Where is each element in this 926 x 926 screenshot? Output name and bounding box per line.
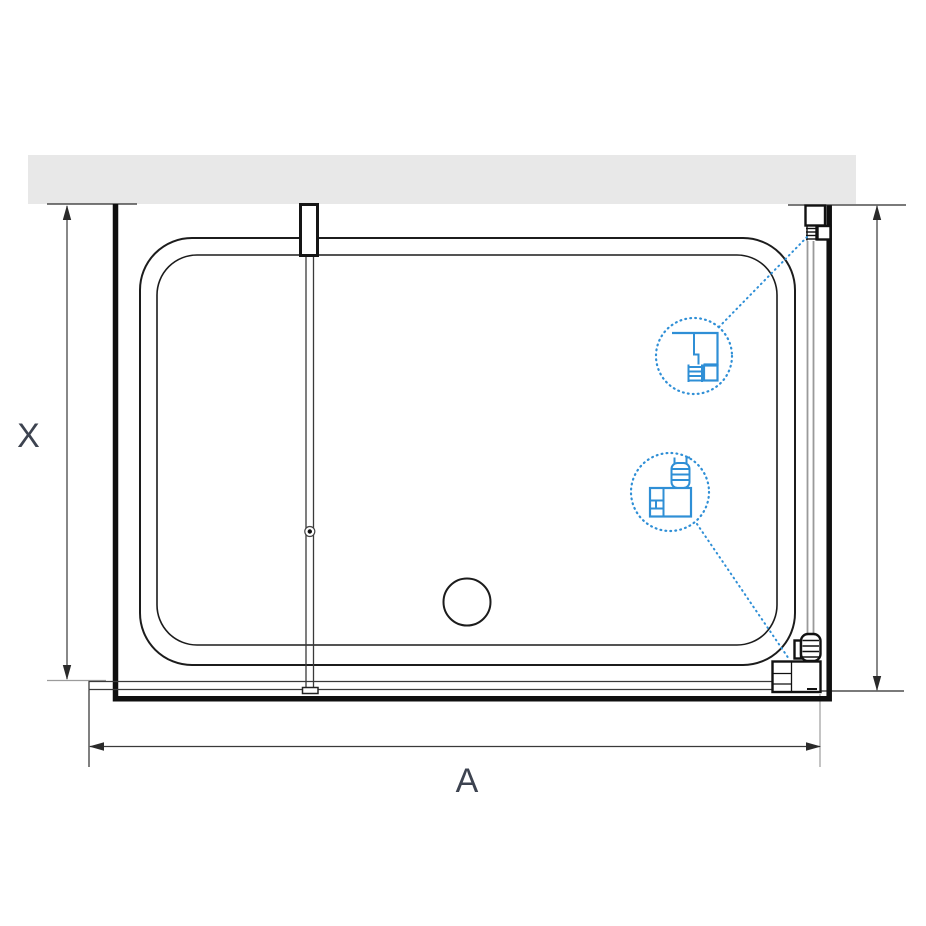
gasket-coil-top-right — [806, 226, 817, 241]
floor-profile-bottom-right — [773, 634, 821, 692]
detail-callout-wall-profile — [656, 318, 732, 394]
wall-bracket-middle-panel — [301, 205, 318, 256]
shower-tray-outer — [140, 238, 795, 665]
detail-circle-lower — [631, 453, 709, 531]
wall-top — [28, 155, 856, 204]
detail-callout-floor-profile — [631, 453, 709, 531]
arrow-up-icon — [63, 205, 71, 220]
technical-drawing-page: X A — [0, 0, 926, 926]
panel-connector-dot-center — [308, 529, 312, 533]
dim-label-a: A — [456, 762, 479, 800]
dim-label-x: X — [17, 417, 40, 455]
arrow-down-icon — [873, 676, 881, 691]
dimension-width-a: A — [89, 742, 821, 800]
arrow-down-icon — [63, 665, 71, 680]
arrow-left-icon — [89, 742, 104, 750]
detail-circle-upper — [656, 318, 732, 394]
drain-icon — [444, 579, 491, 626]
shower-enclosure-plan-drawing: X A — [0, 0, 926, 926]
dimension-right-vertical — [873, 205, 881, 691]
panel-floor-foot — [303, 688, 319, 694]
shower-tray-inner — [157, 255, 777, 645]
leader-line-lower-detail — [697, 524, 789, 659]
arrow-right-icon — [806, 742, 821, 750]
arrow-up-icon — [873, 205, 881, 220]
dimension-depth-x: X — [17, 205, 71, 680]
